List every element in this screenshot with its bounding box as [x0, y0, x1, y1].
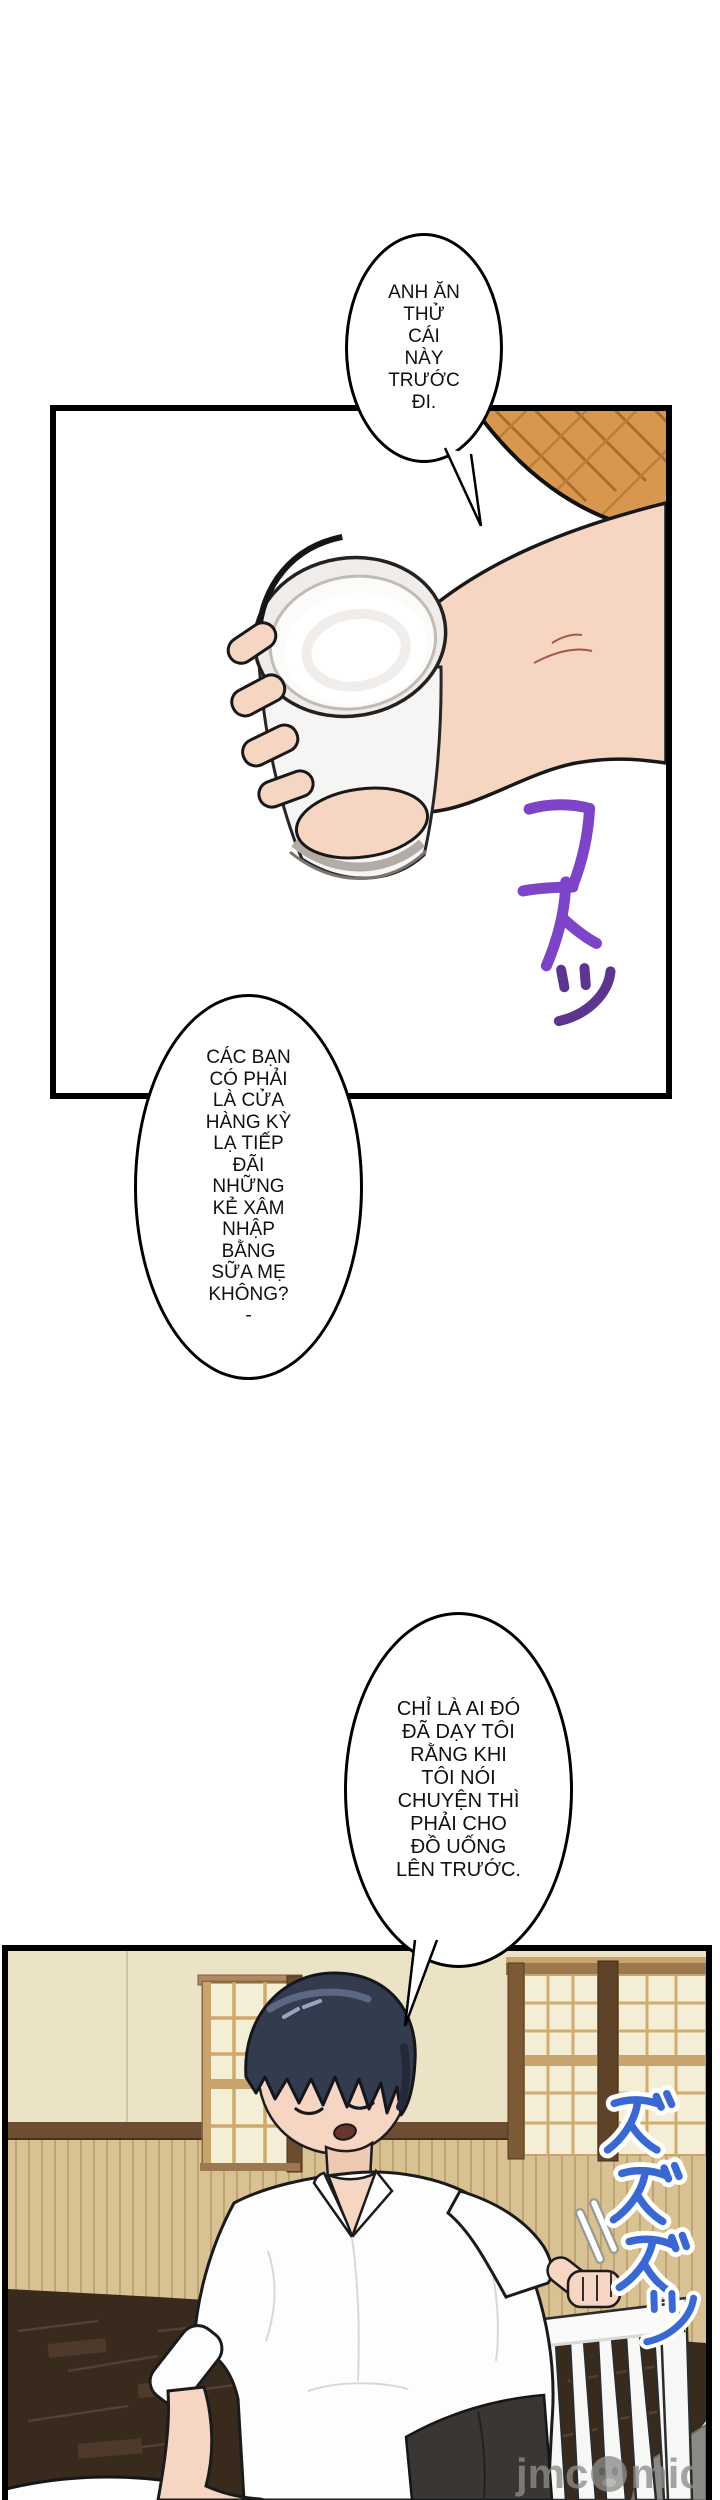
speech-bubble-2: CÁC BẠNCÓ PHẢILÀ CỬAHÀNG KỲLẠ TIẾPĐÃINHỮ…	[134, 994, 363, 1380]
watermark-prefix: jmc	[516, 2450, 588, 2498]
bubble-line: LẠ TIẾP	[213, 1133, 283, 1155]
bubble-line: HÀNG KỲ	[206, 1112, 292, 1134]
panel-milk-glass-art	[56, 411, 666, 1093]
panel-tavern-scene	[2, 1945, 712, 2500]
watermark-suffix: mic	[630, 2450, 702, 2498]
panel-tavern-art	[8, 1951, 706, 2500]
bubble-line: LÀ CỬA	[213, 1090, 284, 1112]
bubble-line: SỮA MẸ	[211, 1262, 285, 1284]
bubble-line: BẰNG	[222, 1241, 276, 1263]
bubble-3-tail	[385, 1938, 445, 2030]
bubble-line: KẺ XÂM	[213, 1198, 285, 1220]
bubble-line: THỬ	[403, 304, 445, 326]
comic-page: ANH ĂNTHỬCÁINÀYTRƯỚCĐI. CÁC BẠNCÓ PHẢILÀ…	[0, 0, 720, 2500]
watermark-mascot-icon	[591, 2456, 627, 2492]
bubble-line: LÊN TRƯỚC.	[396, 1859, 521, 1882]
bubble-line: -	[245, 1305, 251, 1327]
bubble-line: CÓ PHẢI	[209, 1069, 287, 1091]
bubble-line: ĐỒ UỐNG	[411, 1836, 507, 1859]
bubble-line: CÁI	[408, 326, 440, 348]
bubble-line: NHẬP	[222, 1219, 275, 1241]
bubble-line: ĐÃ DẠY TÔI	[402, 1721, 515, 1744]
bubble-line: CHỈ LÀ AI ĐÓ	[397, 1698, 520, 1721]
bubble-line: RẰNG KHI	[410, 1744, 507, 1767]
bubble-line: ĐI.	[412, 392, 436, 414]
watermark: jmc mic	[516, 2450, 703, 2498]
bubble-1-tail	[441, 446, 489, 530]
bubble-line: CÁC BẠN	[206, 1047, 290, 1069]
right-windows	[506, 1957, 706, 2161]
speech-bubble-1: ANH ĂNTHỬCÁINÀYTRƯỚCĐI.	[345, 233, 503, 463]
bubble-line: ĐÃI	[233, 1155, 265, 1177]
bubble-line: CHUYỆN THÌ	[398, 1790, 520, 1813]
bubble-line: TRƯỚC	[388, 370, 460, 392]
bubble-line: NÀY	[404, 348, 443, 370]
bubble-line: KHÔNG?	[208, 1284, 288, 1306]
bubble-line: PHẢI CHO	[410, 1813, 507, 1836]
bubble-line: TÔI NÓI	[421, 1767, 495, 1790]
bubble-line: NHỮNG	[212, 1176, 284, 1198]
panel-milk-glass	[50, 405, 672, 1099]
bubble-line: ANH ĂN	[388, 282, 460, 304]
sfx-kotot	[519, 800, 611, 1031]
speech-bubble-3: CHỈ LÀ AI ĐÓĐÃ DẠY TÔIRẰNG KHITÔI NÓICHU…	[344, 1612, 573, 1968]
